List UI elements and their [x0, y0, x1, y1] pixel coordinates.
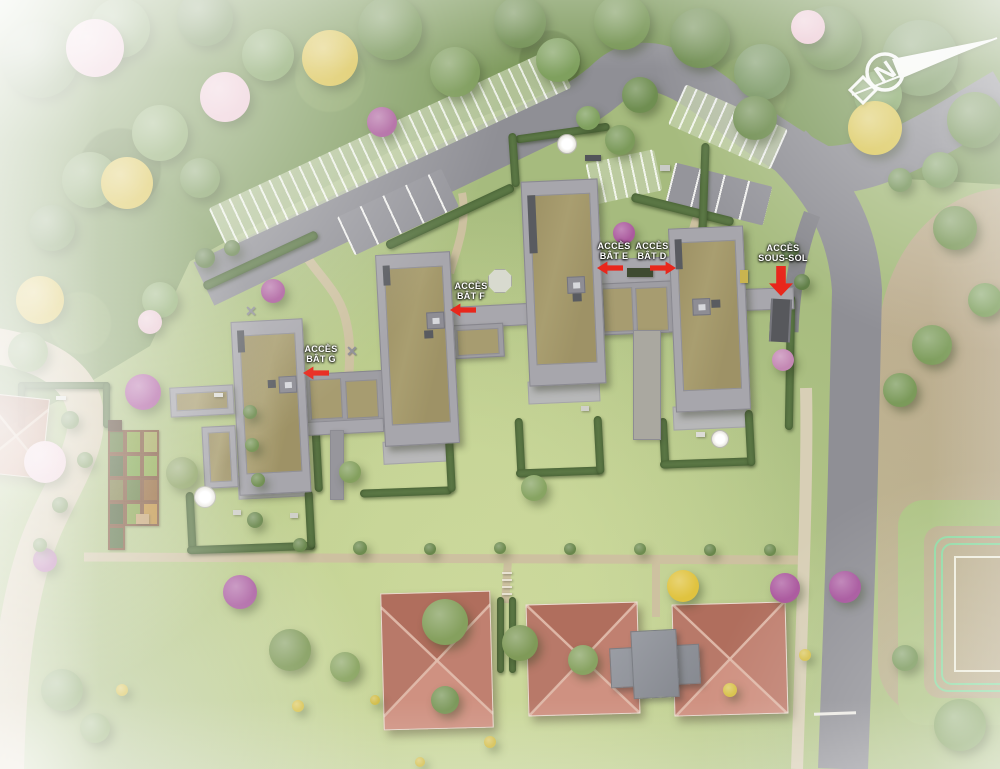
garden-plot: [125, 478, 142, 502]
building-d-roof-panel: [674, 239, 682, 269]
tree-icon: [52, 497, 68, 513]
building-g-roof-panel: [237, 330, 245, 352]
tree-icon: [66, 19, 124, 77]
access-label-line: ACCÈS: [304, 344, 337, 354]
site-furniture: [136, 514, 149, 524]
play-structure-icon: ✕: [346, 344, 358, 358]
tree-icon: [494, 542, 506, 554]
garden-path-steps: [505, 560, 508, 603]
tree-icon: [245, 438, 259, 452]
tree-icon: [415, 757, 425, 767]
play-structure-icon: ✕: [245, 304, 257, 318]
tree-icon: [912, 325, 952, 365]
tree-icon: [634, 543, 646, 555]
tree-icon: [667, 570, 699, 602]
compass-north-icon: N: [840, 15, 1000, 110]
garden-plot: [108, 502, 125, 526]
tree-icon: [33, 538, 47, 552]
tree-icon: [770, 573, 800, 603]
access-label-line: BÂT G: [304, 354, 337, 364]
site-furniture: [740, 270, 748, 283]
tree-icon: [370, 695, 380, 705]
garden-plot: [108, 430, 125, 454]
tree-icon: [704, 544, 716, 556]
tree-icon: [339, 461, 361, 483]
tree-icon: [791, 10, 825, 44]
tree-icon: [933, 206, 977, 250]
tree-icon: [16, 276, 64, 324]
tree-icon: [8, 332, 48, 372]
building-g-green-roof: [239, 333, 302, 475]
site-furniture: [290, 513, 298, 518]
garden-plot: [108, 454, 125, 478]
tree-icon: [247, 512, 263, 528]
tree-icon: [772, 349, 794, 371]
tree-icon: [269, 629, 311, 671]
access-label-line: BÂT E: [597, 251, 630, 261]
tree-icon: [484, 736, 496, 748]
tree-icon: [166, 457, 198, 489]
site-furniture: [502, 586, 512, 588]
tree-icon: [243, 405, 257, 419]
tree-icon: [80, 713, 110, 743]
tree-icon: [922, 152, 958, 188]
tree-icon: [223, 575, 257, 609]
site-furniture: [108, 420, 122, 431]
tree-icon: [888, 168, 912, 192]
access-label-line: ACCÈS: [635, 241, 668, 251]
gray-cross-wing: [630, 629, 679, 699]
tree-icon: [799, 649, 811, 661]
path-between-gardens: [633, 330, 661, 440]
access-label-line: ACCÈS: [454, 281, 487, 291]
tree-icon: [829, 571, 861, 603]
building-f-roof-panel: [383, 265, 391, 285]
tree-icon: [293, 538, 307, 552]
tree-icon: [576, 106, 600, 130]
tree-icon: [24, 441, 66, 483]
tree-icon: [330, 652, 360, 682]
access-label-acces-bat-g: ACCÈSBÂT G: [304, 344, 337, 364]
tree-icon: [764, 544, 776, 556]
tree-icon: [61, 411, 79, 429]
tree-icon: [367, 107, 397, 137]
building-f-roof-access: [426, 312, 445, 330]
tree-icon: [734, 44, 790, 100]
tree-icon: [302, 30, 358, 86]
tree-icon: [33, 548, 57, 572]
garden-plot: [142, 454, 159, 478]
garden-plot: [125, 430, 142, 454]
building-f: [375, 251, 460, 447]
garden-plot: [108, 526, 125, 550]
tree-icon: [116, 684, 128, 696]
tree-icon: [292, 700, 304, 712]
garden-path-main: [84, 557, 802, 560]
annex-g-wing-green-roof: [208, 431, 233, 482]
tree-icon: [521, 475, 547, 501]
tree-icon: [101, 157, 153, 209]
tree-icon: [723, 683, 737, 697]
tree-icon: [794, 274, 810, 290]
building-d: [668, 225, 751, 412]
link-deck-green-roof: [635, 287, 669, 332]
annex-west: [169, 384, 234, 417]
annex-g-wing: [201, 425, 238, 489]
house-gray-cross: [608, 626, 704, 703]
tree-icon: [180, 158, 220, 198]
tree-icon: [41, 669, 83, 711]
site-furniture: [56, 396, 66, 400]
tree-icon: [224, 240, 240, 256]
sidewalk: [797, 388, 806, 769]
site-furniture: [627, 268, 653, 277]
building-e-roof-vent: [572, 293, 581, 301]
tree-icon: [2, 22, 78, 98]
tree-icon: [733, 96, 777, 140]
site-furniture: [502, 593, 512, 595]
access-label-line: BÂT F: [454, 291, 487, 301]
site-furniture: [502, 572, 512, 574]
tree-icon: [568, 645, 598, 675]
building-g-roof-access: [278, 376, 297, 394]
garden-plot: [125, 454, 142, 478]
garden-plot: [142, 478, 159, 502]
tree-icon: [200, 72, 250, 122]
access-label-line: BÂT D: [635, 251, 668, 261]
site-furniture: [502, 579, 512, 581]
tree-icon: [622, 77, 658, 113]
building-f-roof-vent: [424, 330, 433, 338]
tree-icon: [670, 8, 730, 68]
access-label-line: ACCÈS: [758, 243, 807, 253]
tree-icon: [968, 283, 1000, 317]
link-deck-green-roof: [345, 379, 379, 419]
tree-icon: [29, 205, 75, 251]
building-e-roof-access: [567, 276, 586, 294]
site-furniture: [660, 165, 670, 171]
link-deck-green-roof: [602, 287, 634, 332]
tree-icon: [605, 125, 635, 155]
tree-icon: [132, 105, 188, 161]
tree-icon: [242, 29, 294, 81]
garden-plot: [108, 478, 125, 502]
site-furniture: [585, 155, 601, 161]
access-label-acces-bat-f: ACCÈSBÂT F: [454, 281, 487, 301]
tree-icon: [422, 599, 468, 645]
link-deck-f-e: [451, 323, 505, 360]
tree-icon: [934, 699, 986, 751]
link-deck-e-d: [598, 280, 674, 335]
building-d-roof-vent: [711, 300, 720, 308]
umbrella-icon: [711, 430, 729, 448]
tree-icon: [195, 248, 215, 268]
site-furniture: [581, 406, 589, 411]
building-d-green-roof: [677, 240, 742, 391]
site-furniture: [696, 432, 705, 437]
tree-icon: [536, 38, 580, 82]
tree-icon: [430, 47, 480, 97]
tree-icon: [77, 452, 93, 468]
access-label-line: ACCÈS: [597, 241, 630, 251]
tree-icon: [883, 373, 917, 407]
tree-icon: [502, 625, 538, 661]
building-e: [521, 178, 607, 386]
building-g: [230, 318, 311, 496]
access-label-line: SOUS-SOL: [758, 253, 807, 263]
tree-icon: [424, 543, 436, 555]
site-furniture: [233, 510, 241, 515]
tree-icon: [261, 279, 285, 303]
tree-icon: [125, 374, 161, 410]
garden-plot: [142, 430, 159, 454]
access-label-acces-sous-sol: ACCÈSSOUS-SOL: [758, 243, 807, 263]
pavilion-icon: [488, 269, 512, 293]
basement-ramp: [769, 298, 792, 342]
access-label-acces-bat-d: ACCÈSBÂT D: [635, 241, 668, 261]
building-d-roof-access: [692, 298, 711, 316]
link-deck-green-roof: [309, 378, 343, 420]
building-e-green-roof: [529, 193, 597, 365]
tree-icon: [431, 686, 459, 714]
building-f-green-roof: [384, 266, 451, 426]
umbrella-icon: [194, 486, 216, 508]
building-g-roof-vent: [268, 380, 276, 388]
link-deck-green-roof: [456, 328, 499, 356]
site-plan-canvas: N ✕✕ACCÈSBÂT GACCÈSBÂT FACCÈSBÂT EACCÈSB…: [0, 0, 1000, 769]
tree-icon: [251, 473, 265, 487]
site-furniture: [214, 393, 223, 397]
umbrella-icon: [557, 134, 577, 154]
tree-icon: [564, 543, 576, 555]
access-label-acces-bat-e: ACCÈSBÂT E: [597, 241, 630, 261]
tree-icon: [353, 541, 367, 555]
hedge: [18, 382, 110, 389]
tree-icon: [892, 645, 918, 671]
tree-icon: [138, 310, 162, 334]
